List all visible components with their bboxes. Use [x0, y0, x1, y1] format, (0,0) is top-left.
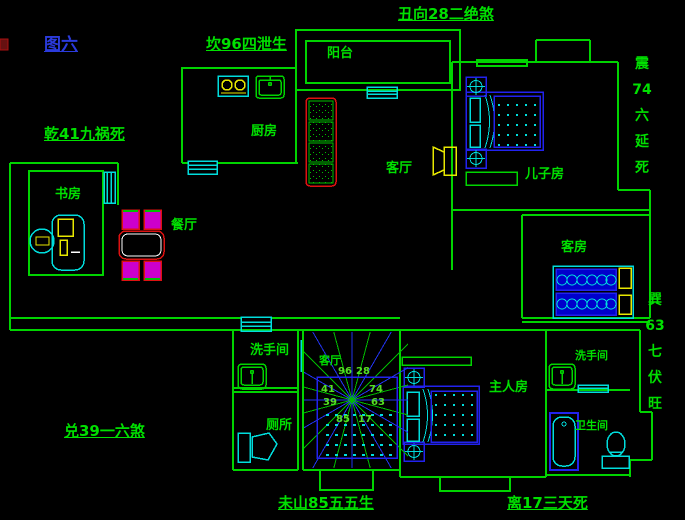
- room-label-master-room: 主人房: [489, 381, 528, 395]
- master-bed: [403, 386, 479, 444]
- room-label-washroom-right: 洗手间: [575, 350, 608, 362]
- son-desk: [466, 172, 517, 185]
- annotation-dui: 兑39一六煞: [64, 423, 145, 440]
- floor-plan-canvas: 图六 坎96四泄生 丑向28二绝煞 乾41九祸死 兑39一六煞 未山85五五生 …: [0, 0, 685, 520]
- annotation-wei: 未山85五五生: [278, 495, 374, 512]
- compass-number-28: 28: [356, 366, 370, 377]
- monitor-icon: [58, 219, 73, 236]
- annotation-zhen: 震 74 六 延 死: [631, 52, 653, 181]
- wall-corridor: [10, 318, 400, 330]
- dining-set: [119, 210, 164, 280]
- room-label-balcony: 阳台: [327, 47, 353, 61]
- compass-number-85: 85: [336, 414, 350, 425]
- annotation-qian: 乾41九祸死: [44, 126, 125, 143]
- room-label-kitchen: 厨房: [251, 125, 277, 139]
- compass-number-41: 41: [321, 384, 335, 395]
- wall-balcony-outer: [296, 30, 460, 90]
- room-label-dining: 餐厅: [171, 219, 197, 233]
- master-shelf: [402, 357, 471, 365]
- annotation-xun: 巽 63 七 伏 旺: [644, 288, 666, 417]
- room-label-son-room: 儿子房: [525, 168, 564, 182]
- corner-mark: [0, 39, 8, 50]
- compass-number-17: 17: [358, 414, 372, 425]
- keyboard-icon: [36, 237, 49, 245]
- figure-title: 图六: [44, 36, 78, 55]
- guest-beds: [553, 266, 633, 318]
- window-kitchen: [188, 161, 217, 174]
- window-corridor: [241, 317, 271, 331]
- wall-top-right: [452, 40, 618, 62]
- annotation-kan: 坎96四泄生: [206, 36, 287, 53]
- toilet-right-icon: [602, 432, 629, 468]
- bathtub-icon: [550, 413, 578, 470]
- stair-treads: [321, 406, 393, 456]
- toilet-left-icon: [238, 433, 277, 462]
- compass-number-74: 74: [369, 384, 383, 395]
- sink-left-icon: [238, 364, 266, 389]
- wall-entry-steps: [320, 470, 510, 491]
- compass-number-96: 96: [338, 366, 352, 377]
- window-study: [104, 172, 115, 203]
- sofa: [306, 98, 336, 186]
- floor-plan-drawing: [0, 0, 685, 520]
- compass-number-63: 63: [371, 397, 385, 408]
- room-label-living: 客厅: [386, 162, 412, 176]
- wall-son-bottom: [452, 210, 650, 215]
- compass-number-39: 39: [323, 397, 337, 408]
- sink-right-icon: [549, 364, 575, 389]
- window-below-balcony: [367, 87, 397, 98]
- dining-table: [119, 231, 164, 259]
- annotation-chou: 丑向28二绝煞: [398, 6, 494, 23]
- room-label-guest-room: 客房: [561, 241, 587, 255]
- room-label-toilet: 厕所: [266, 419, 292, 433]
- study-desk: [30, 215, 84, 270]
- annotation-li: 离17三天死: [507, 495, 588, 512]
- room-label-washroom-left: 洗手间: [250, 344, 289, 358]
- stove: [218, 76, 248, 96]
- son-bed: [466, 92, 543, 150]
- room-label-bathroom: 卫生间: [575, 420, 608, 432]
- room-label-study: 书房: [55, 188, 81, 202]
- kitchen-sink-icon: [256, 76, 284, 98]
